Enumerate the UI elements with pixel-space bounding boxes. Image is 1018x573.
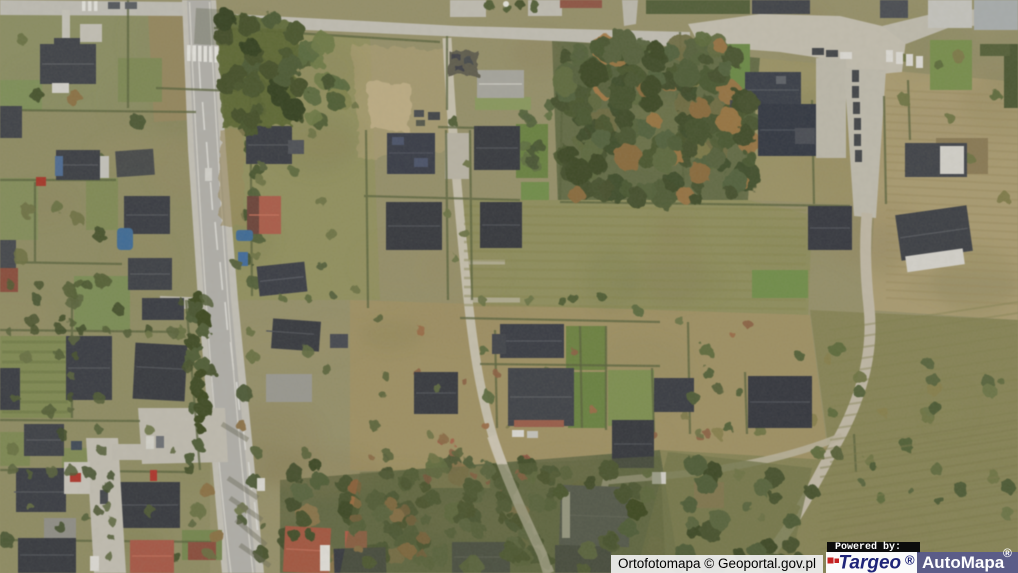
svg-text:Targeo: Targeo	[839, 553, 902, 573]
svg-text:®: ®	[905, 553, 915, 568]
